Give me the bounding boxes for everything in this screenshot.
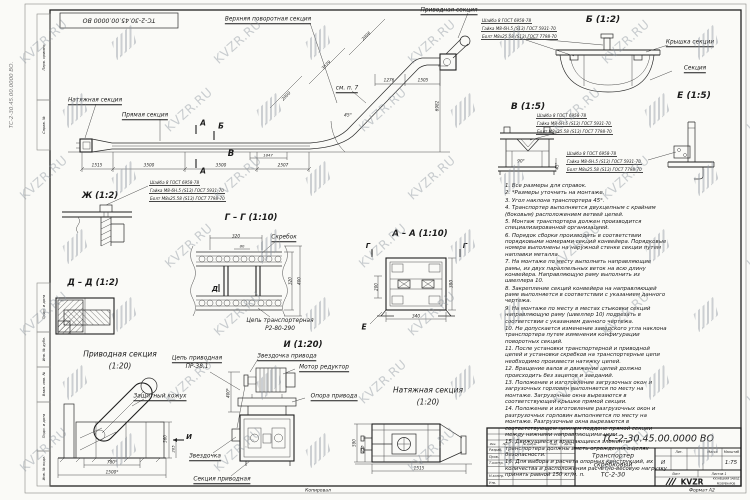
fastener-callout-line: Шайба 8 ГОСТ 6958-78 — [481, 18, 532, 24]
fastener-callout: Шайба 8 ГОСТ 6958-78Гайка М8-6Н.5 (S13) … — [149, 180, 226, 203]
fastener-callout-line: Шайба 8 ГОСТ 6958-78 — [149, 180, 200, 186]
fastener-callout-line: Болт М8х25.58 (S13) ГОСТ 7798-70 — [149, 196, 226, 202]
fastener-callout-line: Болт М8х25.58 (S13) ГОСТ 7798-70 — [481, 34, 558, 40]
drawing-sheet: ТС-2-30.45.00.0000 ВОТС-2-30.45.00.0000 … — [0, 0, 750, 500]
fastener-callout: Шайба 8 ГОСТ 6958-78Гайка М8-6Н.5 (S13) … — [566, 151, 643, 174]
fastener-callouts: Шайба 8 ГОСТ 6958-78Гайка М8-6Н.5 (S13) … — [0, 0, 750, 500]
fastener-callout: Шайба 8 ГОСТ 6958-78Гайка М8-6Н.5 (S13) … — [481, 18, 558, 41]
fastener-callout: Шайба 8 ГОСТ 6958-78Гайка М8-6Н.5 (S13) … — [536, 113, 613, 136]
fastener-callout-line: Гайка М8-6Н.5 (S13) ГОСТ 5931-70 — [481, 26, 557, 32]
fastener-callout-line: Гайка М8-6Н.5 (S13) ГОСТ 5931-70 — [536, 121, 612, 127]
fastener-callout-line: Гайка М8-6Н.5 (S13) ГОСТ 5931-70 — [149, 188, 225, 194]
fastener-callout-line: Болт М8х25.58 (S13) ГОСТ 7798-70 — [536, 129, 613, 135]
fastener-callout-line: Шайба 8 ГОСТ 6958-78 — [536, 113, 587, 119]
fastener-callout-line: Шайба 8 ГОСТ 6958-78 — [566, 151, 617, 157]
fastener-callout-line: Болт М8х25.58 (S13) ГОСТ 7798-70 — [566, 167, 643, 173]
fastener-callout-line: Гайка М8-6Н.5 (S13) ГОСТ 5931-70 — [566, 159, 642, 165]
